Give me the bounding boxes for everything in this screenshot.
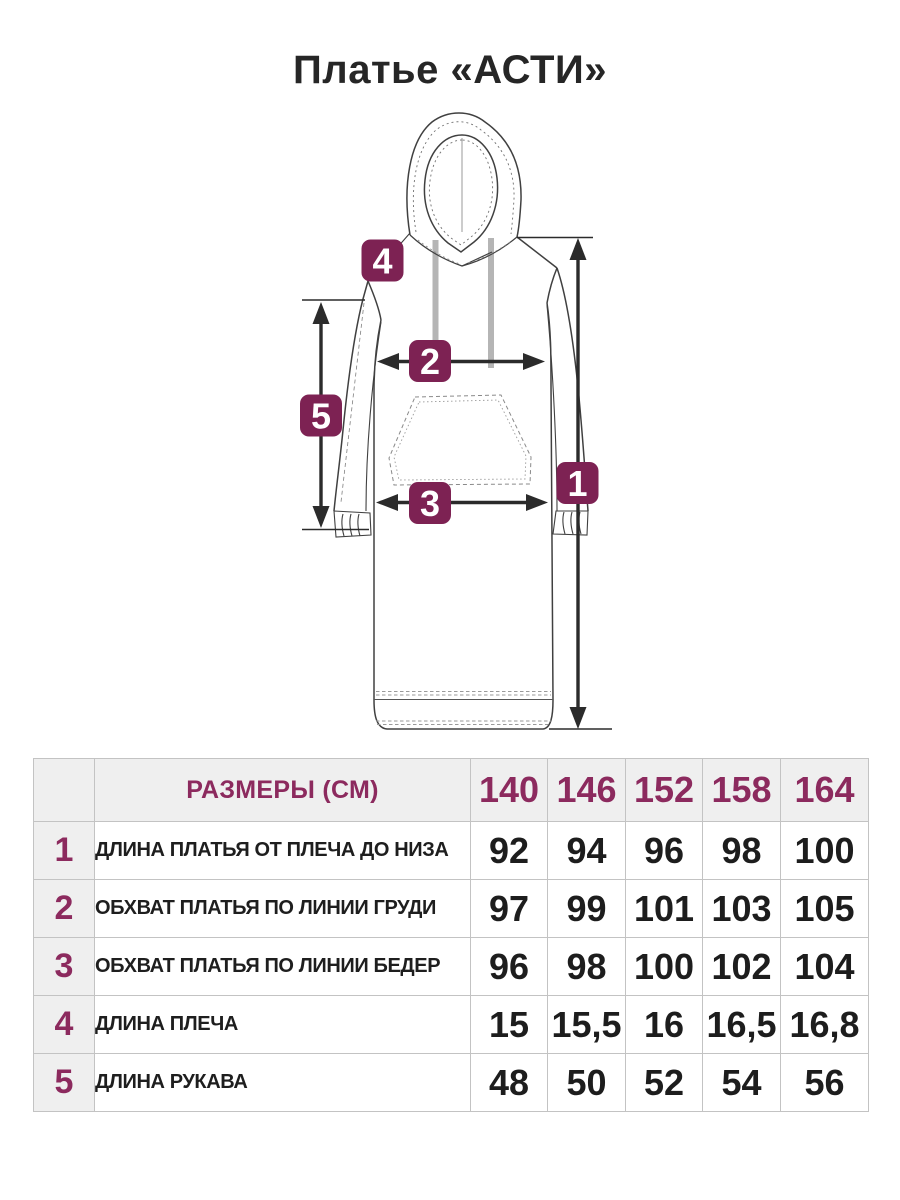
side-seam-left: [374, 320, 381, 700]
row-value: 100: [781, 822, 869, 880]
row-value: 15,5: [548, 996, 626, 1054]
table-row: 5 ДЛИНА РУКАВА 48 50 52 54 56: [34, 1054, 869, 1112]
row-value: 16,5: [703, 996, 781, 1054]
row-label: ДЛИНА ПЛЕЧА: [95, 996, 471, 1054]
row-value: 98: [703, 822, 781, 880]
row-label: ДЛИНА ПЛАТЬЯ ОТ ПЛЕЧА ДО НИЗА: [95, 822, 471, 880]
table-row: 1 ДЛИНА ПЛАТЬЯ ОТ ПЛЕЧА ДО НИЗА 92 94 96…: [34, 822, 869, 880]
row-value: 48: [471, 1054, 548, 1112]
sleeve-left-outer: [334, 281, 368, 511]
shoulder-seam-right: [517, 237, 557, 268]
size-col-158: 158: [703, 759, 781, 822]
row-value: 50: [548, 1054, 626, 1112]
row-value: 16: [626, 996, 703, 1054]
marker-5: 5: [300, 395, 342, 437]
arrow-chest: [377, 353, 545, 370]
row-value: 52: [626, 1054, 703, 1112]
row-value: 97: [471, 880, 548, 938]
size-chart-page: Платье «АСТИ»: [0, 0, 900, 1200]
row-number: 5: [34, 1054, 95, 1112]
marker-2: 2: [409, 340, 451, 382]
row-value: 16,8: [781, 996, 869, 1054]
marker-1: 1: [557, 462, 599, 504]
row-number: 4: [34, 996, 95, 1054]
row-number: 1: [34, 822, 95, 880]
pocket: [389, 395, 531, 485]
row-value: 102: [703, 938, 781, 996]
marker-4-label: 4: [372, 241, 392, 282]
row-value: 104: [781, 938, 869, 996]
size-col-164: 164: [781, 759, 869, 822]
row-label: ДЛИНА РУКАВА: [95, 1054, 471, 1112]
row-value: 105: [781, 880, 869, 938]
size-col-140: 140: [471, 759, 548, 822]
row-value: 98: [548, 938, 626, 996]
header-corner-cell: [34, 759, 95, 822]
marker-2-label: 2: [420, 341, 440, 382]
arrow-hip: [376, 494, 548, 511]
size-table-header-row: РАЗМЕРЫ (СМ) 140 146 152 158 164: [34, 759, 869, 822]
row-value: 101: [626, 880, 703, 938]
sleeves: [334, 268, 588, 537]
table-row: 4 ДЛИНА ПЛЕЧА 15 15,5 16 16,5 16,8: [34, 996, 869, 1054]
cuff-right: [553, 511, 588, 535]
row-value: 99: [548, 880, 626, 938]
body: [368, 233, 557, 729]
marker-1-label: 1: [567, 463, 587, 504]
size-col-146: 146: [548, 759, 626, 822]
marker-3-label: 3: [420, 483, 440, 524]
row-value: 96: [626, 822, 703, 880]
row-value: 92: [471, 822, 548, 880]
row-number: 2: [34, 880, 95, 938]
marker-4: 4: [362, 240, 404, 282]
hood: [407, 113, 521, 266]
row-value: 56: [781, 1054, 869, 1112]
row-label: ОБХВАТ ПЛАТЬЯ ПО ЛИНИИ БЕДЕР: [95, 938, 471, 996]
row-label: ОБХВАТ ПЛАТЬЯ ПО ЛИНИИ ГРУДИ: [95, 880, 471, 938]
measure-markers: 4 2 5 3 1: [300, 240, 599, 525]
row-value: 103: [703, 880, 781, 938]
cuff-left: [334, 511, 371, 537]
table-row: 3 ОБХВАТ ПЛАТЬЯ ПО ЛИНИИ БЕДЕР 96 98 100…: [34, 938, 869, 996]
table-row: 2 ОБХВАТ ПЛАТЬЯ ПО ЛИНИИ ГРУДИ 97 99 101…: [34, 880, 869, 938]
marker-5-label: 5: [311, 396, 331, 437]
size-col-152: 152: [626, 759, 703, 822]
row-value: 96: [471, 938, 548, 996]
row-value: 15: [471, 996, 548, 1054]
armhole-right: [547, 268, 557, 303]
row-value: 54: [703, 1054, 781, 1112]
row-number: 3: [34, 938, 95, 996]
armhole-left: [368, 281, 381, 320]
size-table: РАЗМЕРЫ (СМ) 140 146 152 158 164 1 ДЛИНА…: [33, 758, 869, 1112]
hem-stitching: [374, 692, 553, 725]
row-value: 94: [548, 822, 626, 880]
marker-3: 3: [409, 482, 451, 524]
sleeve-left-seam: [341, 303, 364, 502]
sizes-header-label: РАЗМЕРЫ (СМ): [95, 759, 471, 822]
row-value: 100: [626, 938, 703, 996]
